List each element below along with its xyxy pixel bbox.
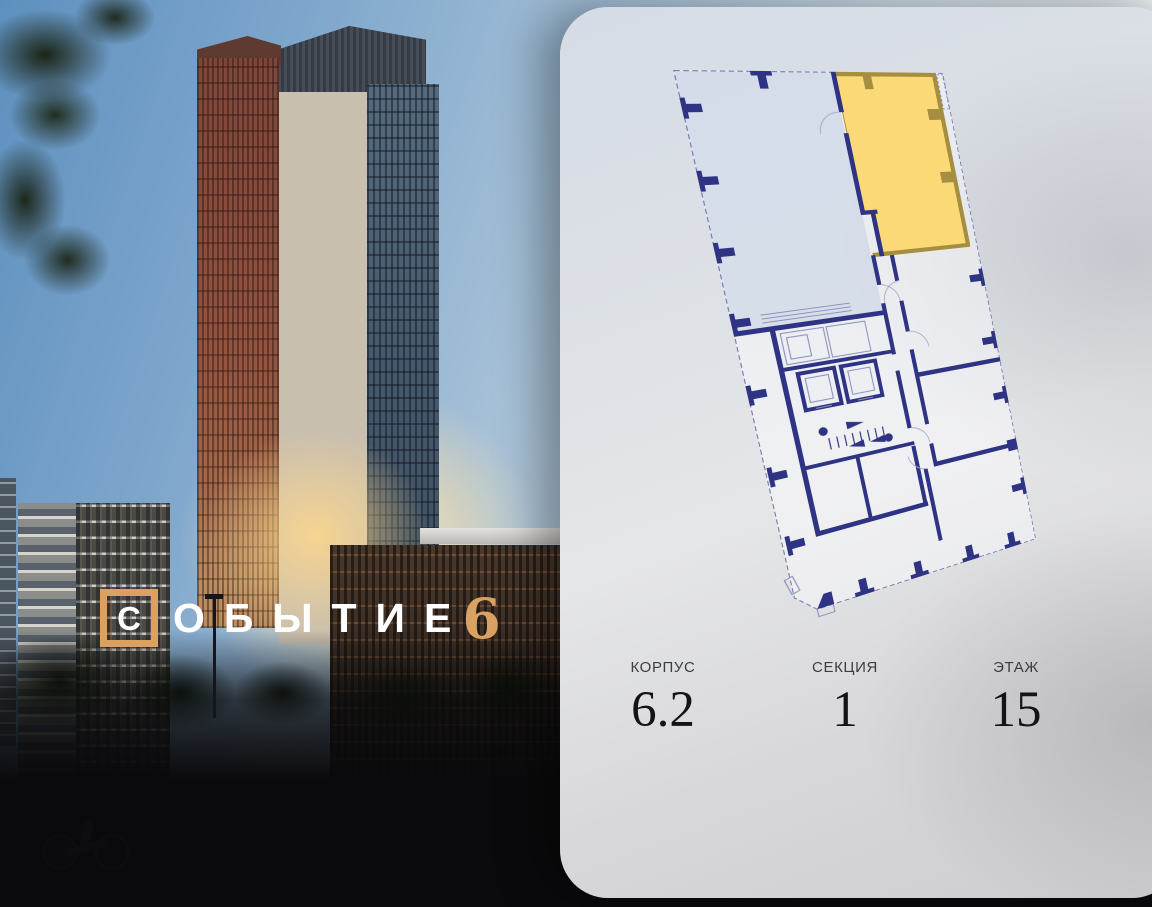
stat-korpus: КОРПУС 6.2 xyxy=(631,659,696,736)
tree-silhouette xyxy=(460,650,555,732)
stat-floor: ЭТАЖ 15 xyxy=(991,659,1042,736)
tree-silhouette xyxy=(125,655,235,730)
logo-letter-box: С xyxy=(100,589,158,647)
tree-silhouette xyxy=(340,665,465,737)
logo-text: ОБЫТИЕ xyxy=(173,598,470,639)
podium-roof-slab xyxy=(420,528,562,544)
stat-floor-label: ЭТАЖ xyxy=(991,659,1042,676)
stat-floor-value: 15 xyxy=(991,685,1042,736)
stat-section-value: 1 xyxy=(812,685,878,736)
stat-korpus-label: КОРПУС xyxy=(631,659,696,676)
floorplan-panel: КОРПУС 6.2 СЕКЦИЯ 1 ЭТАЖ 15 xyxy=(560,7,1152,898)
stat-korpus-value: 6.2 xyxy=(631,685,696,736)
logo-first-letter: С xyxy=(117,602,141,635)
page: С ОБЫТИЕ 6 xyxy=(0,0,1152,907)
cyclist-silhouette xyxy=(42,800,142,870)
stat-section: СЕКЦИЯ 1 xyxy=(812,659,878,736)
tree-branch xyxy=(25,225,110,295)
stat-section-label: СЕКЦИЯ xyxy=(812,659,878,676)
brand-logo: С ОБЫТИЕ 6 xyxy=(100,586,501,650)
apartment-details: КОРПУС 6.2 СЕКЦИЯ 1 ЭТАЖ 15 xyxy=(560,7,1152,898)
logo-number: 6 xyxy=(462,591,500,646)
tree-silhouette xyxy=(235,662,330,724)
